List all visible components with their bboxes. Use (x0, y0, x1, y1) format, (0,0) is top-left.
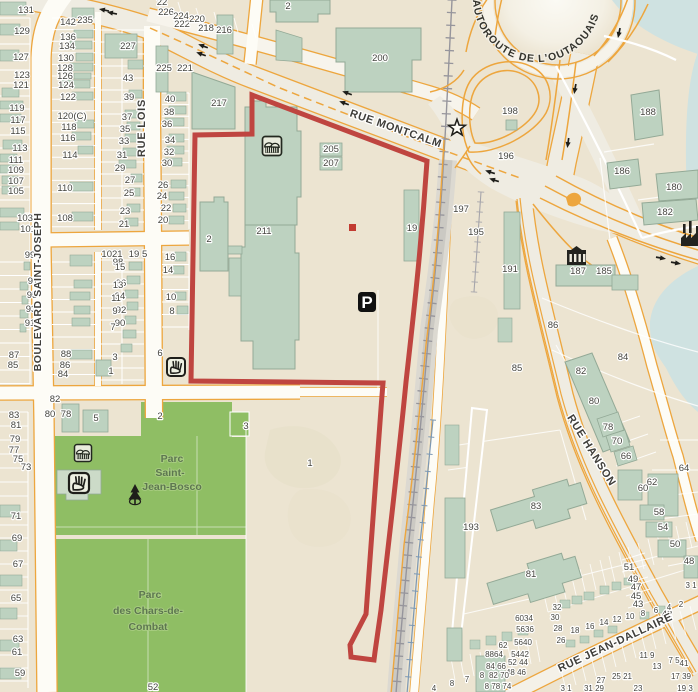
svg-text:des Chars-de-: des Chars-de- (113, 605, 184, 617)
svg-text:105: 105 (8, 186, 24, 197)
svg-text:32: 32 (553, 603, 562, 612)
svg-text:226: 226 (158, 7, 174, 18)
svg-text:P: P (361, 293, 372, 312)
svg-text:79: 79 (10, 434, 21, 445)
svg-text:7 5: 7 5 (668, 656, 680, 665)
svg-text:3 1: 3 1 (685, 581, 697, 590)
svg-text:14: 14 (163, 265, 174, 276)
svg-text:80: 80 (45, 409, 56, 420)
svg-text:78: 78 (603, 422, 614, 433)
svg-text:19 3: 19 3 (677, 684, 693, 692)
svg-text:23: 23 (120, 206, 131, 217)
svg-text:8: 8 (169, 306, 174, 317)
svg-text:1: 1 (307, 458, 312, 469)
svg-text:4: 4 (432, 684, 437, 692)
svg-text:85: 85 (8, 360, 19, 371)
svg-text:37: 37 (122, 112, 133, 123)
svg-text:3 1: 3 1 (560, 684, 572, 692)
svg-text:186: 186 (614, 166, 630, 177)
svg-text:18: 18 (571, 626, 580, 635)
svg-text:58: 58 (654, 507, 665, 518)
svg-text:29: 29 (115, 163, 126, 174)
svg-text:6034: 6034 (515, 614, 533, 623)
svg-text:69: 69 (12, 533, 23, 544)
svg-text:188: 188 (640, 107, 656, 118)
svg-text:43: 43 (123, 73, 134, 84)
svg-text:108: 108 (57, 213, 73, 224)
svg-text:200: 200 (372, 53, 388, 64)
svg-text:109: 109 (8, 165, 24, 176)
svg-text:221: 221 (177, 63, 193, 74)
svg-text:54: 54 (658, 522, 669, 533)
svg-text:110: 110 (57, 183, 72, 194)
svg-text:Combat: Combat (128, 621, 168, 633)
svg-text:222: 222 (174, 19, 190, 30)
svg-text:52: 52 (148, 682, 159, 692)
svg-text:9: 9 (112, 306, 117, 317)
svg-text:187: 187 (570, 266, 586, 277)
svg-text:10: 10 (166, 292, 177, 303)
svg-text:218: 218 (198, 23, 214, 34)
svg-text:3: 3 (243, 421, 248, 432)
svg-text:59: 59 (15, 668, 26, 679)
svg-text:117: 117 (10, 115, 25, 126)
svg-text:78: 78 (61, 409, 72, 420)
svg-text:52 44: 52 44 (508, 658, 529, 667)
svg-text:82: 82 (576, 366, 587, 377)
svg-text:36: 36 (162, 119, 173, 130)
svg-text:63: 63 (13, 634, 24, 645)
svg-text:25 21: 25 21 (612, 672, 633, 681)
svg-text:Parc: Parc (139, 589, 162, 601)
svg-text:83: 83 (531, 501, 542, 512)
svg-text:8: 8 (480, 671, 485, 680)
svg-text:205: 205 (323, 144, 339, 155)
svg-text:84: 84 (58, 369, 69, 380)
svg-text:48 46: 48 46 (506, 668, 527, 677)
svg-text:16: 16 (165, 252, 176, 263)
svg-text:196: 196 (498, 151, 514, 162)
svg-text:7: 7 (465, 675, 470, 684)
svg-text:2: 2 (285, 1, 290, 12)
svg-text:6: 6 (654, 606, 659, 615)
svg-text:185: 185 (596, 266, 612, 277)
svg-text:30: 30 (162, 158, 173, 169)
svg-text:114: 114 (62, 150, 77, 161)
svg-text:197: 197 (453, 204, 469, 215)
svg-text:11 9: 11 9 (640, 651, 656, 660)
svg-text:17 39: 17 39 (671, 672, 692, 681)
svg-text:50: 50 (670, 539, 681, 550)
svg-text:5640: 5640 (514, 638, 532, 647)
svg-text:5636: 5636 (516, 625, 534, 634)
svg-text:8: 8 (641, 609, 646, 618)
svg-text:211: 211 (256, 226, 271, 237)
svg-text:82 70: 82 70 (489, 671, 510, 680)
svg-text:90: 90 (115, 318, 126, 329)
svg-text:66: 66 (621, 451, 632, 462)
svg-text:23: 23 (634, 684, 643, 692)
svg-text:120(C): 120(C) (57, 111, 86, 122)
svg-text:Saint-: Saint- (155, 467, 185, 479)
svg-text:81: 81 (11, 420, 22, 431)
svg-text:28: 28 (554, 624, 563, 633)
svg-text:134: 134 (59, 41, 75, 52)
svg-text:216: 216 (216, 25, 232, 36)
svg-text:80: 80 (589, 396, 600, 407)
svg-text:34: 34 (165, 135, 176, 146)
svg-text:33: 33 (119, 136, 130, 147)
svg-text:71: 71 (11, 511, 22, 522)
svg-text:8: 8 (450, 679, 455, 688)
svg-text:40: 40 (165, 94, 176, 105)
svg-text:25: 25 (124, 188, 135, 199)
svg-text:20: 20 (158, 215, 169, 226)
svg-text:51: 51 (624, 562, 635, 573)
svg-text:31: 31 (117, 150, 128, 161)
svg-text:73: 73 (21, 462, 32, 473)
svg-text:70: 70 (612, 436, 623, 447)
svg-text:84: 84 (618, 352, 629, 363)
svg-text:13: 13 (113, 280, 124, 291)
svg-text:60: 60 (638, 483, 649, 494)
svg-text:116: 116 (60, 133, 75, 144)
svg-text:198: 198 (502, 106, 518, 117)
svg-text:118: 118 (61, 122, 76, 133)
svg-text:41: 41 (680, 659, 689, 668)
svg-text:119: 119 (9, 103, 24, 114)
svg-text:31 29: 31 29 (584, 684, 605, 692)
svg-text:16: 16 (586, 622, 595, 631)
svg-text:235: 235 (77, 15, 93, 26)
svg-text:30: 30 (551, 613, 560, 622)
svg-text:7: 7 (110, 322, 115, 333)
svg-text:182: 182 (657, 207, 673, 218)
svg-text:2: 2 (206, 234, 211, 245)
svg-text:12: 12 (613, 615, 622, 624)
svg-text:127: 127 (13, 52, 29, 63)
svg-text:67: 67 (13, 559, 24, 570)
svg-text:115: 115 (10, 126, 25, 137)
svg-text:8864: 8864 (485, 650, 503, 659)
svg-text:3: 3 (112, 352, 117, 363)
svg-text:131: 131 (18, 5, 34, 16)
svg-text:11: 11 (111, 293, 121, 304)
svg-text:129: 129 (14, 26, 30, 37)
svg-text:RUE LOIS: RUE LOIS (136, 99, 148, 157)
svg-text:86: 86 (548, 320, 559, 331)
svg-text:1: 1 (108, 366, 113, 377)
svg-text:225: 225 (156, 63, 172, 74)
svg-text:26: 26 (158, 180, 169, 191)
svg-text:195: 195 (468, 227, 484, 238)
svg-text:Parc: Parc (161, 453, 184, 465)
svg-text:81: 81 (526, 569, 537, 580)
svg-text:103: 103 (17, 213, 33, 224)
svg-text:26: 26 (557, 636, 566, 645)
svg-text:Jean-Bosco: Jean-Bosco (142, 481, 202, 493)
svg-text:82: 82 (50, 394, 61, 405)
svg-text:10: 10 (626, 612, 635, 621)
svg-text:22: 22 (161, 203, 172, 214)
svg-text:27: 27 (125, 175, 136, 186)
svg-text:207: 207 (323, 158, 339, 169)
svg-text:14: 14 (600, 618, 609, 627)
svg-text:19 5: 19 5 (129, 249, 148, 260)
svg-text:191: 191 (502, 264, 518, 275)
svg-text:227: 227 (120, 41, 136, 52)
svg-text:85: 85 (512, 363, 523, 374)
svg-text:2: 2 (679, 600, 684, 609)
svg-text:32: 32 (164, 147, 175, 158)
svg-text:61: 61 (12, 647, 23, 658)
svg-text:217: 217 (211, 98, 227, 109)
svg-text:142: 142 (60, 17, 76, 28)
svg-text:122: 122 (60, 92, 76, 103)
svg-text:2: 2 (157, 411, 162, 422)
svg-text:88: 88 (61, 349, 72, 360)
svg-text:5: 5 (93, 413, 98, 424)
svg-text:15: 15 (115, 262, 126, 273)
svg-text:124: 124 (58, 80, 74, 91)
svg-text:62: 62 (647, 477, 658, 488)
svg-text:48: 48 (684, 556, 695, 567)
svg-text:22: 22 (157, 0, 168, 8)
svg-text:24: 24 (157, 191, 168, 202)
svg-text:21: 21 (119, 219, 130, 230)
svg-text:64: 64 (679, 463, 690, 474)
svg-text:6: 6 (157, 348, 162, 359)
svg-text:121: 121 (13, 80, 29, 91)
svg-text:8 78 74: 8 78 74 (485, 682, 512, 691)
svg-text:180: 180 (666, 182, 682, 193)
svg-text:39: 39 (124, 92, 135, 103)
svg-text:BOULEVARD SAINT-JOSEPH: BOULEVARD SAINT-JOSEPH (32, 213, 44, 372)
svg-text:193: 193 (463, 522, 479, 533)
svg-text:13: 13 (653, 662, 662, 671)
svg-text:35: 35 (120, 124, 131, 135)
svg-text:19: 19 (407, 223, 418, 234)
svg-text:38: 38 (164, 107, 175, 118)
svg-text:84 66: 84 66 (486, 662, 507, 671)
svg-text:113: 113 (12, 143, 27, 154)
svg-text:65: 65 (11, 593, 22, 604)
svg-text:62: 62 (499, 641, 508, 650)
